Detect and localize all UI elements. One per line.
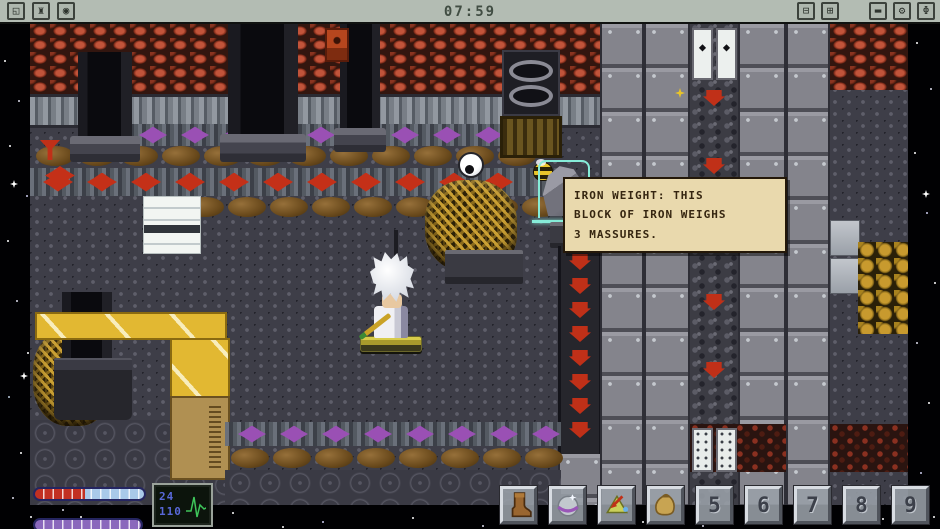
- purple-diamond-shape: [532, 426, 560, 443]
- metal-slab: [445, 250, 523, 284]
- purple-diamond-shape: [364, 426, 392, 443]
- gold-honeycomb: [858, 242, 908, 334]
- log-shape: [273, 448, 311, 468]
- topbar-right-buttons: ⊟ ⊞ ▬ ⚙ Φ: [791, 2, 935, 20]
- health-bar: [33, 487, 146, 501]
- plate-column: [600, 24, 644, 505]
- log-shape: [315, 448, 353, 468]
- star-sparkle: [20, 372, 28, 380]
- hotbar-slot-3[interactable]: [598, 486, 635, 524]
- rubble-arrow-column: [690, 82, 738, 482]
- crate-fine-print: [209, 406, 221, 470]
- hotbar-slot-2[interactable]: [549, 486, 586, 524]
- log-row: [225, 446, 561, 470]
- purple-diamond-shape: [475, 127, 503, 144]
- wall-poster: [325, 28, 349, 62]
- power-icon[interactable]: Φ: [917, 2, 935, 20]
- red-rubble-band: [830, 424, 908, 472]
- vitals-top-value: 24: [159, 489, 182, 504]
- darrow-shape: [569, 254, 591, 270]
- log-shape: [36, 146, 74, 166]
- purple-diamond-shape: [490, 426, 518, 443]
- hotbar-slot-9[interactable]: 9: [892, 486, 929, 524]
- red-diamond-shape: [131, 173, 161, 192]
- hotbar-slot-6[interactable]: 6: [745, 486, 782, 524]
- gold-block: [35, 312, 227, 340]
- zoom-in-icon[interactable]: ⊞: [821, 2, 839, 20]
- log-shape: [525, 448, 563, 468]
- gold-block: [170, 338, 230, 398]
- wooden-cage: [500, 116, 562, 158]
- pillar-cap: [334, 128, 386, 152]
- purple-diamond-shape: [238, 426, 266, 443]
- purple-diamond-shape: [307, 127, 335, 144]
- darrow-shape: [569, 374, 591, 390]
- beacon-icon: [603, 491, 631, 519]
- log-shape: [162, 146, 200, 166]
- health-bar-ticks: [35, 489, 144, 499]
- hotbar-slot-5[interactable]: 5: [696, 486, 733, 524]
- red-diamond-shape: [175, 173, 205, 192]
- game-stage: IRON WEIGHT: THIS BLOCK OF IRON WEIGHS 3…: [0, 0, 940, 529]
- gold-platform: [360, 336, 422, 352]
- tooltip-line: BLOCK OF IRON WEIGHS: [574, 205, 776, 224]
- vitals-panel: 24 110: [152, 483, 213, 527]
- chimney-pillar: [78, 52, 132, 148]
- minimize-icon[interactable]: ▬: [869, 2, 887, 20]
- bottom-door-left[interactable]: [692, 428, 713, 472]
- log-shape: [483, 448, 521, 468]
- darrow-shape: [703, 90, 725, 106]
- tooltip-line: IRON WEIGHT: THIS: [574, 186, 776, 205]
- hotbar-slot-1[interactable]: [500, 486, 537, 524]
- darrow-shape: [569, 302, 591, 318]
- slot-number: 6: [757, 493, 770, 517]
- purple-diamond-shape: [406, 426, 434, 443]
- settings-gear-icon[interactable]: ⚙: [893, 2, 911, 20]
- log-shape: [270, 197, 308, 217]
- light-metal-block: [830, 258, 860, 294]
- log-shape: [399, 448, 437, 468]
- red-diamond-shape: [351, 173, 381, 192]
- door-left[interactable]: ◆: [692, 28, 713, 80]
- purple-diamond-shape: [433, 127, 461, 144]
- plate-column: [786, 24, 830, 505]
- purple-arrow-row: [225, 422, 561, 446]
- star-sparkle: [922, 190, 930, 198]
- coil-rings-machine: [502, 50, 560, 116]
- light-metal-block: [830, 220, 860, 256]
- door-right[interactable]: ◆: [716, 28, 737, 80]
- darrow-shape: [703, 158, 725, 174]
- game-scene: IRON WEIGHT: THIS BLOCK OF IRON WEIGHS 3…: [30, 24, 908, 505]
- log-shape: [414, 146, 452, 166]
- darrow-shape: [569, 278, 591, 294]
- hopper-base: [54, 358, 132, 420]
- slot-number: 9: [904, 493, 917, 517]
- hotbar-slot-8[interactable]: 8: [843, 486, 880, 524]
- hotbar-slot-7[interactable]: 7: [794, 486, 831, 524]
- ring: [509, 60, 553, 82]
- eyeball-creature: [458, 152, 484, 178]
- star-sparkle: [10, 180, 18, 188]
- top-menu-bar: ◱ ♜ ◉ 07:59 ⊟ ⊞ ▬ ⚙ Φ: [0, 0, 940, 24]
- hotbar-slot-4[interactable]: [647, 486, 684, 524]
- slot-number: 5: [708, 493, 721, 517]
- white-list-panel: [143, 196, 201, 254]
- darrow-shape: [703, 294, 725, 310]
- boot-icon: [506, 491, 532, 519]
- red-diamond-shape: [87, 173, 117, 192]
- door-diamond-icon: ◆: [699, 40, 706, 54]
- purple-diamond-shape: [391, 127, 419, 144]
- sack-icon: [653, 491, 679, 519]
- log-shape: [231, 448, 269, 468]
- darrow-shape: [703, 362, 725, 378]
- purple-diamond-shape: [322, 426, 350, 443]
- purple-diamond-shape: [139, 127, 167, 144]
- log-shape: [228, 197, 266, 217]
- slot-number: 7: [806, 493, 819, 517]
- ring: [509, 85, 553, 107]
- chimney-pillar: [228, 24, 298, 146]
- log-shape: [354, 197, 392, 217]
- darrow-shape: [569, 326, 591, 342]
- heartbeat-waveform-icon: [185, 489, 206, 521]
- red-diamond-shape: [395, 173, 425, 192]
- red-diamond-shape: [263, 173, 293, 192]
- purple-diamond-shape: [448, 426, 476, 443]
- bottom-door-right[interactable]: [716, 428, 737, 472]
- darrow-shape: [569, 350, 591, 366]
- darrow-shape: [569, 398, 591, 414]
- tooltip-line: 3 MASSURES.: [574, 225, 776, 244]
- bubble-orb-icon: [554, 491, 582, 519]
- log-shape: [312, 197, 350, 217]
- pillar-cap: [70, 136, 140, 162]
- energy-bar-ticks: [35, 520, 141, 529]
- energy-bar: [33, 518, 143, 529]
- red-down-arrow-column: [558, 246, 602, 454]
- pillar-cap: [220, 134, 306, 162]
- topbar-spacer: [839, 2, 863, 20]
- log-shape: [441, 448, 479, 468]
- red-diamond-shape: [219, 173, 249, 192]
- purple-diamond-shape: [280, 426, 308, 443]
- tooltip-box: IRON WEIGHT: THIS BLOCK OF IRON WEIGHS 3…: [563, 177, 787, 253]
- labeled-crate: [170, 396, 230, 480]
- vitals-bottom-value: 110: [159, 504, 182, 519]
- plate-column: [644, 24, 690, 505]
- red-ceiling-right: [830, 24, 908, 90]
- zoom-out-icon[interactable]: ⊟: [797, 2, 815, 20]
- red-diamond-shape: [307, 173, 337, 192]
- slot-number: 8: [855, 493, 868, 517]
- door-diamond-icon: ◆: [723, 40, 730, 54]
- log-shape: [357, 448, 395, 468]
- darrow-shape: [569, 422, 591, 438]
- purple-diamond-shape: [181, 127, 209, 144]
